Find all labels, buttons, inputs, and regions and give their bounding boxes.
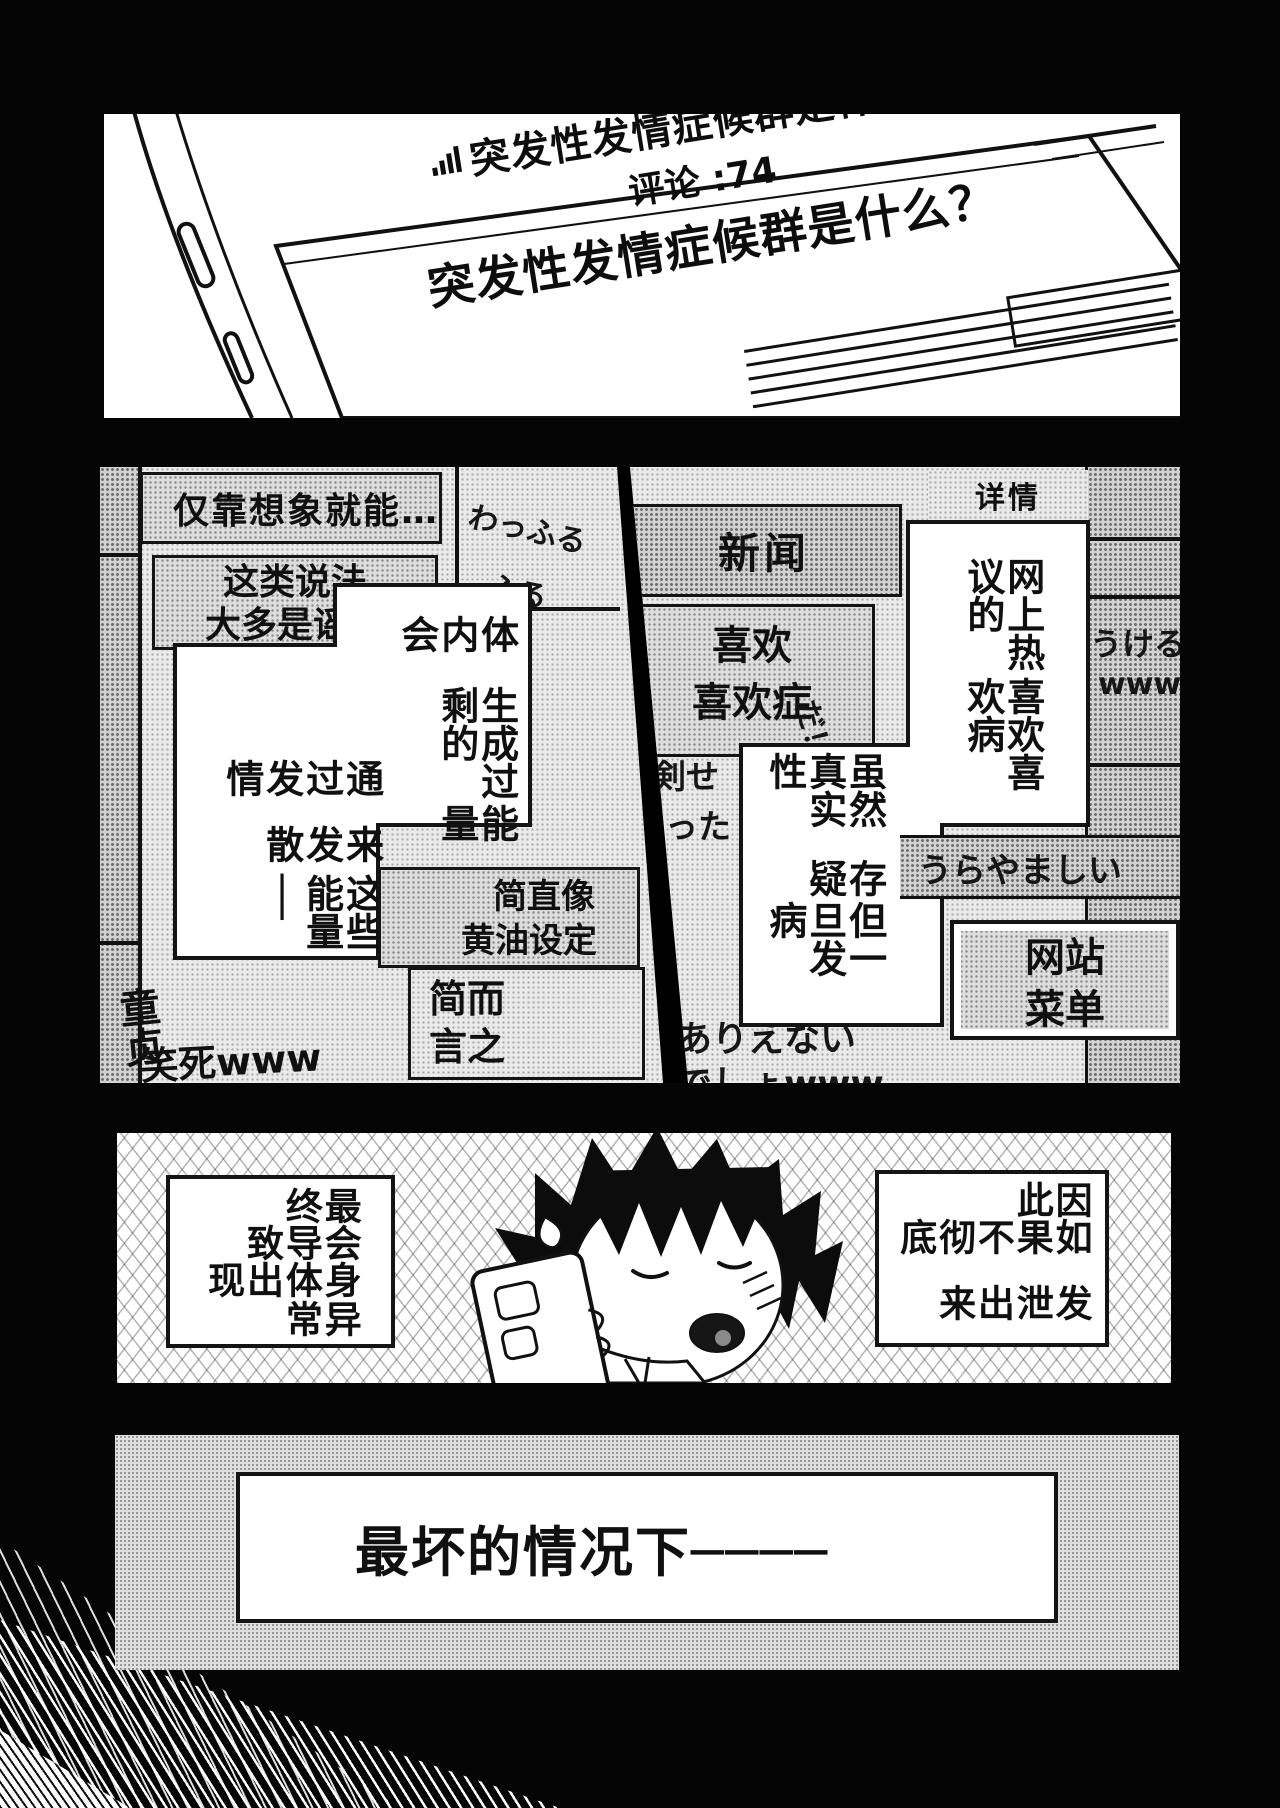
panel-caption: 最坏的情况下──── bbox=[115, 1435, 1179, 1670]
site-menu-box: 网站 菜单 bbox=[950, 920, 1180, 1040]
comment-galge-line1: 简直像 bbox=[381, 874, 637, 920]
caption-main-text: 最坏的情况下──── bbox=[240, 1508, 829, 1587]
caption-main-box: 最坏的情况下──── bbox=[236, 1472, 1058, 1623]
comment-galge-line2: 黄油设定 bbox=[381, 920, 637, 962]
comment-box-galge: 简直像 黄油设定 bbox=[378, 867, 640, 968]
details-tab-text: 详情 bbox=[975, 473, 1041, 517]
boy-drawing bbox=[387, 1133, 907, 1383]
manga-page: 突发性发情症候群是什么？ 评论 :74 突发性发情症候群是什么？ わっふる ふる… bbox=[0, 0, 1280, 1808]
site-menu-line1: 网站 bbox=[954, 930, 1176, 986]
caption-box-right: 因此 如果不彻底 发泄出来 bbox=[875, 1170, 1109, 1347]
comment-brief-line1: 简而 bbox=[411, 974, 642, 1024]
comment-imagine-text: 仅靠想象就能… bbox=[143, 482, 439, 534]
bg-text-urayamashii: うらやましい bbox=[900, 843, 1122, 892]
panel-mid: わっふる ふる 仅靠想象就能… 这类说法 大多是谣言 体内会 生成过剩的 能量 … bbox=[100, 467, 1180, 1083]
comment-lol-text: 笑死www bbox=[139, 1026, 323, 1083]
caption-right-text: 因此 如果不彻底 发泄出来 bbox=[891, 1181, 1093, 1336]
bubble-doubt-text: 虽然真实性 存疑 但一旦发病 bbox=[760, 752, 888, 1008]
caption-box-left: 最终 会导致 身体出现 异常 bbox=[166, 1175, 395, 1348]
comment-box-brief: 简而 言之 bbox=[408, 967, 645, 1080]
panel-phone: 突发性发情症候群是什么？ 评论 :74 突发性发情症候群是什么？ bbox=[104, 114, 1180, 418]
signal-bars-icon bbox=[429, 146, 462, 176]
bg-text-www: www bbox=[1098, 667, 1180, 702]
comment-brief-line2: 言之 bbox=[411, 1024, 642, 1070]
bg-text-ukeru: うける bbox=[1090, 619, 1180, 665]
bg-text-yatta: やった bbox=[632, 800, 731, 848]
bubble-release-text: 通过发情 来发散 这些能量── bbox=[217, 759, 385, 959]
bg-text-deshou: でしょwww bbox=[676, 1055, 884, 1083]
panel-boy: 最终 会导致 身体出现 异常 因此 如果不彻底 发泄出来 bbox=[117, 1133, 1171, 1383]
comment-box-imagine: 仅靠想象就能… bbox=[140, 472, 442, 544]
bubble-net-text: 网上热议的 喜欢喜欢病 bbox=[958, 557, 1046, 797]
bubble-energy-text: 体内会 生成过剩的 能量 bbox=[392, 615, 520, 851]
bg-band-urayamashii: うらやましい bbox=[900, 835, 1180, 899]
site-menu-line2: 菜单 bbox=[954, 986, 1176, 1034]
caption-left-text: 最终 会导致 身体出现 异常 bbox=[199, 1187, 362, 1337]
